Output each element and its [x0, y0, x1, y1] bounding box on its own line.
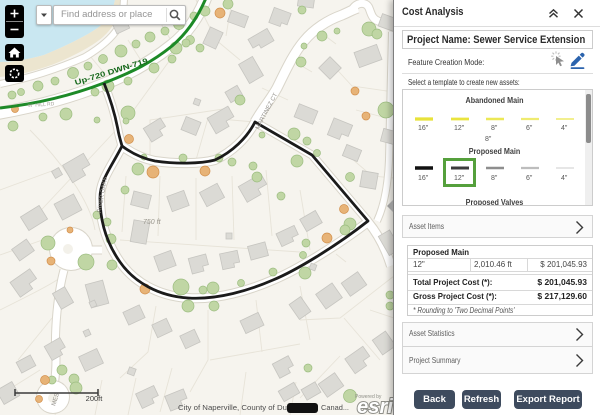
svg-text:City of Naperville, County of: City of Naperville, County of Du: [178, 403, 287, 412]
svg-text:Canad...: Canad...: [321, 403, 349, 412]
svg-text:750 ft: 750 ft: [143, 219, 162, 226]
svg-text:esri: esri: [357, 396, 393, 415]
svg-text:200ft: 200ft: [86, 394, 104, 403]
